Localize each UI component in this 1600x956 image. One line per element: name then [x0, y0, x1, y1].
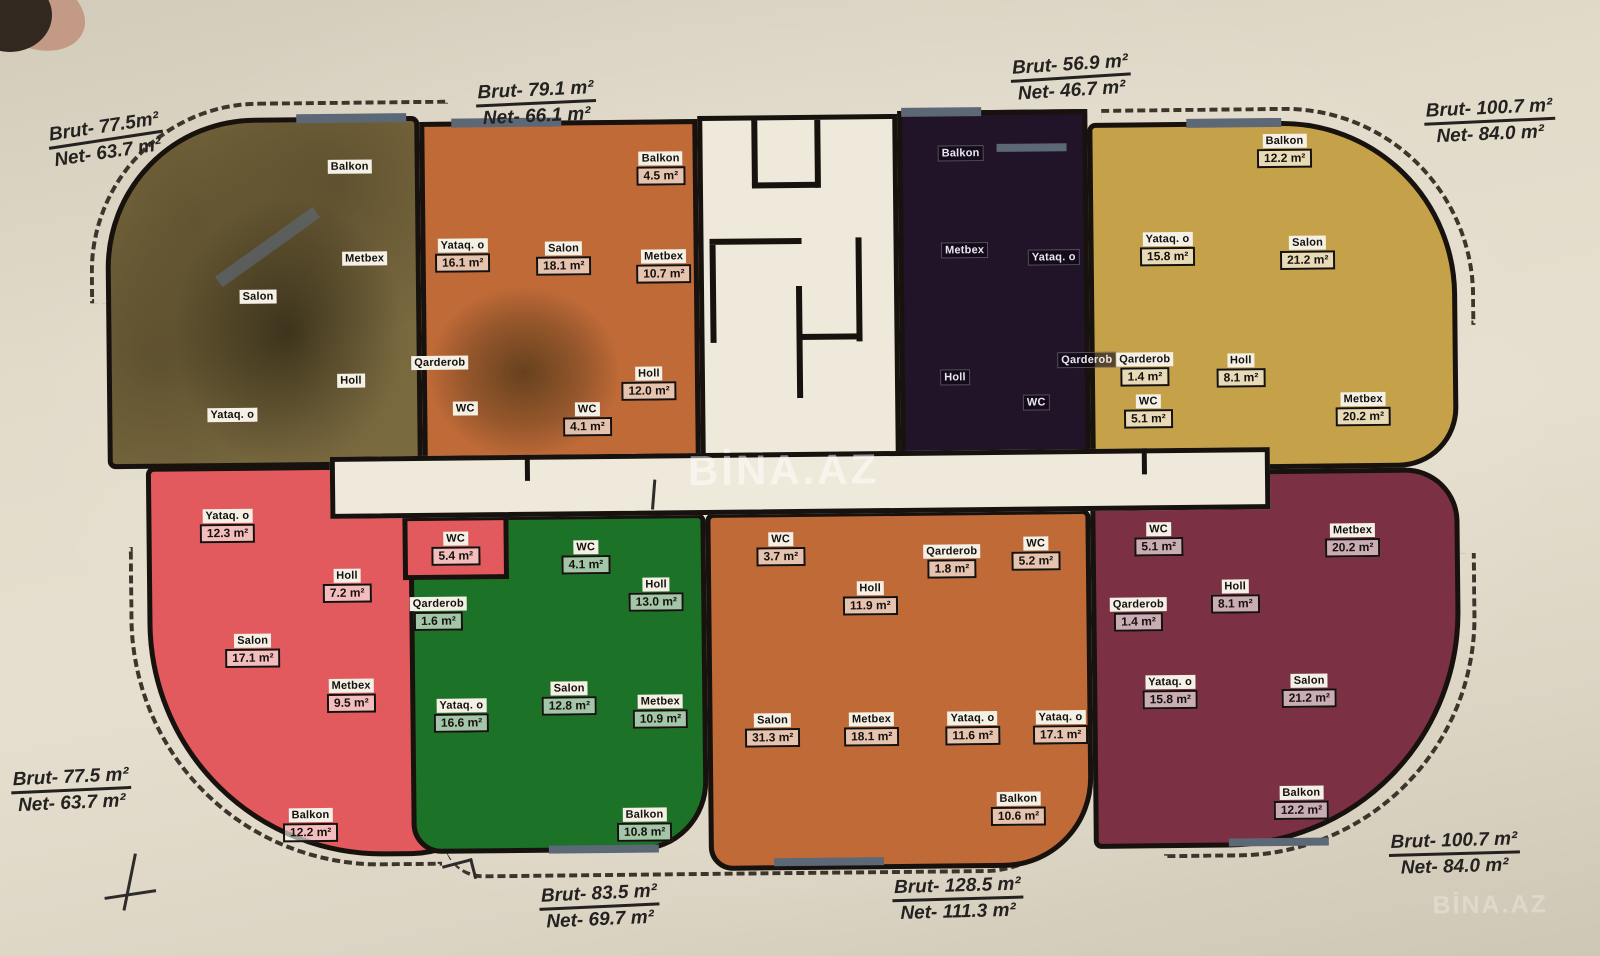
room-name: Holl: [1221, 579, 1249, 593]
room-name: Yataq. o: [436, 698, 486, 713]
watermark-corner: BİNA.AZ: [1432, 890, 1548, 920]
net-value: Net- 63.7 m²: [11, 789, 132, 817]
room-name: WC: [1146, 522, 1171, 536]
room-label: Yataq. o17.1 m²: [1033, 710, 1089, 745]
room-area: 10.7 m²: [636, 264, 692, 284]
room-label: Holl13.0 m²: [628, 577, 684, 612]
room-area: 20.2 m²: [1336, 407, 1392, 427]
room-name: Yataq. o: [948, 711, 998, 726]
room-label: WC5.4 m²: [431, 531, 480, 566]
room-label: Metbex20.2 m²: [1325, 523, 1381, 558]
room-name: Salon: [240, 289, 277, 303]
room-label: Holl11.9 m²: [843, 581, 898, 616]
area-label-bottom-third: Brut- 128.5 m² Net- 111.3 m²: [892, 873, 1024, 926]
room-name: WC: [573, 540, 598, 554]
room-area: 1.6 m²: [414, 612, 463, 632]
room-label: Salon21.2 m²: [1280, 235, 1336, 270]
room-name: Salon: [754, 713, 791, 727]
window-strip: [1186, 118, 1281, 128]
room-label: Metbex9.5 m²: [327, 678, 376, 713]
room-area: 21.2 m²: [1280, 250, 1336, 270]
room-name: Yataq. o: [1028, 249, 1080, 266]
room-area: 1.4 m²: [1121, 367, 1170, 387]
room-name: Yataq. o: [202, 509, 252, 524]
room-label: Yataq. o15.8 m²: [1140, 232, 1196, 267]
wall: [709, 238, 801, 245]
area-label-bottom-left: Brut- 77.5 m² Net- 63.7 m²: [10, 763, 132, 817]
room-area: 12.0 m²: [621, 381, 677, 401]
pen-mark-squiggle: [442, 858, 477, 886]
window-strip: [296, 113, 406, 123]
room-area: 10.8 m²: [617, 822, 673, 842]
room-name: Salon: [545, 241, 582, 255]
room-name: WC: [1136, 394, 1161, 408]
room-label: Metbex20.2 m²: [1335, 392, 1391, 427]
pen-mark-cross-vertical: [122, 853, 136, 910]
room-area: 12.2 m²: [283, 823, 339, 843]
room-name: Salon: [1291, 673, 1328, 687]
room-name: Balkon: [938, 145, 984, 161]
room-label: Yataq. o: [1028, 249, 1080, 266]
room-label: WC4.1 m²: [561, 540, 610, 575]
room-label: Holl8.1 m²: [1211, 579, 1260, 614]
room-name: Holl: [940, 369, 970, 385]
room-area: 12.3 m²: [200, 524, 256, 544]
room-name: Metbex: [342, 251, 387, 265]
room-name: Yataq. o: [1143, 232, 1193, 247]
room-area: 5.1 m²: [1134, 537, 1183, 557]
room-label: Metbex: [342, 251, 387, 265]
floor-plan-photo: Brut- 77.5m² Net- 63.7 m² Brut- 79.1 m² …: [0, 0, 1600, 956]
room-area: 11.9 m²: [843, 596, 898, 616]
room-label: Balkon4.5 m²: [636, 151, 685, 186]
room-area: 18.1 m²: [536, 256, 592, 276]
room-label: WC5.2 m²: [1011, 536, 1060, 571]
room-area: 12.2 m²: [1257, 149, 1313, 169]
room-area: 1.8 m²: [928, 559, 977, 579]
room-label: Salon: [240, 289, 277, 303]
window-strip: [901, 107, 981, 117]
room-area: 1.4 m²: [1114, 612, 1163, 632]
area-label-bottom-right: Brut- 100.7 m² Net- 84.0 m²: [1388, 827, 1520, 880]
room-name: Metbex: [641, 249, 686, 263]
room-name: WC: [453, 401, 478, 415]
wall: [796, 333, 860, 340]
room-name: Qarderob: [1057, 352, 1116, 369]
wall: [525, 455, 530, 481]
room-label: Salon17.1 m²: [225, 633, 281, 668]
room-name: Balkon: [639, 151, 683, 165]
room-area: 12.8 m²: [542, 696, 598, 716]
room-name: Qarderob: [1110, 597, 1167, 612]
room-name: Balkon: [622, 807, 666, 821]
wall: [814, 120, 821, 188]
room-name: Salon: [234, 634, 271, 648]
room-area: 17.1 m²: [1033, 725, 1089, 745]
room-label: Yataq. o11.6 m²: [945, 711, 1000, 746]
room-area: 7.2 m²: [323, 583, 372, 603]
room-name: Balkon: [288, 808, 332, 822]
room-label: Yataq. o16.1 m²: [435, 238, 491, 273]
room-area: 8.1 m²: [1217, 368, 1266, 388]
room-name: Holl: [1227, 353, 1255, 367]
wall: [1142, 448, 1147, 474]
room-label: WC3.7 m²: [756, 532, 805, 567]
room-area: 20.2 m²: [1325, 538, 1381, 558]
room-name: WC: [768, 532, 793, 546]
wall: [855, 237, 862, 341]
window-strip: [1229, 837, 1329, 846]
room-label: WC5.1 m²: [1124, 394, 1173, 429]
room-name: Metbex: [638, 694, 683, 708]
room-area: 17.1 m²: [225, 648, 281, 668]
room-label: Yataq. o15.8 m²: [1142, 675, 1198, 710]
room-label: WC5.1 m²: [1134, 522, 1183, 557]
room-label: Balkon12.2 m²: [1257, 134, 1313, 169]
room-name: Salon: [1289, 235, 1326, 249]
area-label-top-right: Brut- 100.7 m² Net- 84.0 m²: [1423, 94, 1556, 149]
room-area: 16.1 m²: [435, 253, 491, 273]
room-name: Yataq. o: [438, 238, 488, 253]
room-name: Qarderob: [410, 596, 467, 611]
room-label: Qarderob1.8 m²: [923, 544, 980, 579]
room-name: Metbex: [1341, 392, 1386, 406]
room-label: Salon31.3 m²: [745, 713, 801, 748]
pen-mark-cross-horizontal: [104, 889, 156, 900]
room-name: WC: [575, 402, 600, 416]
room-name: WC: [443, 531, 468, 545]
room-area: 18.1 m²: [844, 727, 900, 747]
room-label: WC: [453, 401, 478, 415]
room-name: Balkon: [1279, 786, 1323, 800]
room-label: Balkon12.2 m²: [1274, 785, 1330, 820]
room-name: Holl: [333, 569, 361, 583]
room-area: 4.5 m²: [636, 166, 685, 186]
wall: [796, 286, 803, 398]
room-name: Balkon: [1262, 134, 1306, 148]
room-name: Salon: [551, 681, 588, 695]
room-label: Qarderob: [1057, 352, 1116, 369]
net-value: Net- 69.7 m²: [540, 905, 661, 933]
room-area: 5.2 m²: [1011, 551, 1060, 571]
room-name: WC: [1023, 394, 1050, 410]
room-label: Metbex: [941, 242, 988, 258]
room-name: Qarderob: [923, 544, 980, 559]
room-label: Qarderob1.4 m²: [1110, 597, 1167, 632]
wall: [751, 120, 758, 186]
room-area: 15.8 m²: [1143, 690, 1199, 710]
room-area: 5.1 m²: [1124, 409, 1173, 429]
room-name: Yataq. o: [207, 408, 257, 423]
room-label: Metbex18.1 m²: [844, 712, 900, 747]
room-name: Holl: [635, 366, 663, 380]
room-label: WC4.1 m²: [563, 402, 612, 437]
room-label: Salon21.2 m²: [1281, 673, 1337, 708]
room-label: Yataq. o: [207, 408, 257, 423]
floor-plan: Brut- 77.5m² Net- 63.7 m² Brut- 79.1 m² …: [0, 0, 1600, 956]
room-name: Yataq. o: [1145, 675, 1195, 690]
room-label: Balkon10.8 m²: [617, 807, 673, 842]
room-area: 4.1 m²: [563, 417, 612, 437]
room-label: Balkon12.2 m²: [283, 808, 339, 843]
room-name: Balkon: [996, 792, 1040, 806]
room-name: Qarderob: [411, 355, 468, 370]
room-name: Qarderob: [1116, 352, 1173, 367]
apartment-top-third-shape: [897, 109, 1091, 459]
brut-value: Brut- 128.5 m²: [892, 873, 1023, 903]
room-area: 11.6 m²: [945, 726, 1000, 746]
room-name: Metbex: [1330, 523, 1375, 537]
room-area: 5.4 m²: [431, 546, 480, 566]
net-value: Net- 84.0 m²: [1389, 853, 1520, 880]
room-label: Salon12.8 m²: [541, 681, 597, 716]
window-strip: [997, 143, 1067, 152]
room-area: 12.2 m²: [1274, 800, 1330, 820]
room-name: Holl: [337, 374, 365, 388]
room-label: WC: [1023, 394, 1050, 410]
net-value: Net- 84.0 m²: [1424, 120, 1556, 149]
room-area: 15.8 m²: [1140, 247, 1196, 267]
room-label: Balkon: [938, 145, 984, 161]
room-label: Yataq. o12.3 m²: [200, 509, 256, 544]
room-area: 3.7 m²: [756, 547, 805, 567]
net-value: Net- 111.3 m²: [892, 899, 1023, 926]
watermark-center: BİNA.AZ: [688, 445, 880, 495]
room-area: 13.0 m²: [629, 592, 685, 612]
room-name: Yataq. o: [1036, 710, 1086, 725]
room-label: Holl: [337, 374, 365, 388]
room-label: Yataq. o16.6 m²: [434, 698, 490, 733]
room-area: 16.6 m²: [434, 713, 490, 733]
room-name: Balkon: [328, 159, 372, 173]
room-name: Metbex: [941, 242, 988, 258]
room-name: Metbex: [329, 678, 374, 692]
room-label: Metbex10.9 m²: [633, 694, 689, 729]
room-area: 8.1 m²: [1211, 594, 1260, 614]
room-area: 10.6 m²: [991, 806, 1047, 826]
room-area: 10.9 m²: [633, 709, 689, 729]
window-strip: [774, 857, 884, 866]
room-label: Balkon: [328, 159, 372, 173]
room-label: Metbex10.7 m²: [636, 249, 692, 284]
room-label: Holl7.2 m²: [323, 568, 372, 603]
room-label: Holl12.0 m²: [621, 366, 677, 401]
room-area: 4.1 m²: [561, 555, 610, 575]
brut-value: Brut- 100.7 m²: [1388, 827, 1519, 857]
room-label: Holl: [940, 369, 970, 385]
room-name: Holl: [642, 577, 670, 591]
room-area: 21.2 m²: [1282, 688, 1338, 708]
room-label: Balkon10.6 m²: [991, 791, 1047, 826]
room-name: Metbex: [849, 712, 894, 726]
room-label: Salon18.1 m²: [536, 241, 592, 276]
room-area: 9.5 m²: [327, 693, 376, 713]
room-label: Qarderob1.4 m²: [1116, 352, 1173, 387]
wall: [752, 182, 818, 189]
area-label-top-second: Brut- 79.1 m² Net- 66.1 m²: [475, 76, 597, 130]
room-area: 31.3 m²: [745, 728, 801, 748]
room-label: Qarderob1.6 m²: [410, 596, 467, 631]
room-name: WC: [1023, 536, 1048, 550]
room-label: Holl8.1 m²: [1216, 353, 1265, 388]
area-label-bottom-second: Brut- 83.5 m² Net- 69.7 m²: [538, 879, 660, 933]
area-label-top-third: Brut- 56.9 m² Net- 46.7 m²: [1009, 49, 1132, 105]
room-name: Holl: [856, 581, 884, 595]
room-label: Qarderob: [411, 355, 468, 370]
wall: [710, 245, 717, 343]
window-strip: [549, 844, 659, 853]
